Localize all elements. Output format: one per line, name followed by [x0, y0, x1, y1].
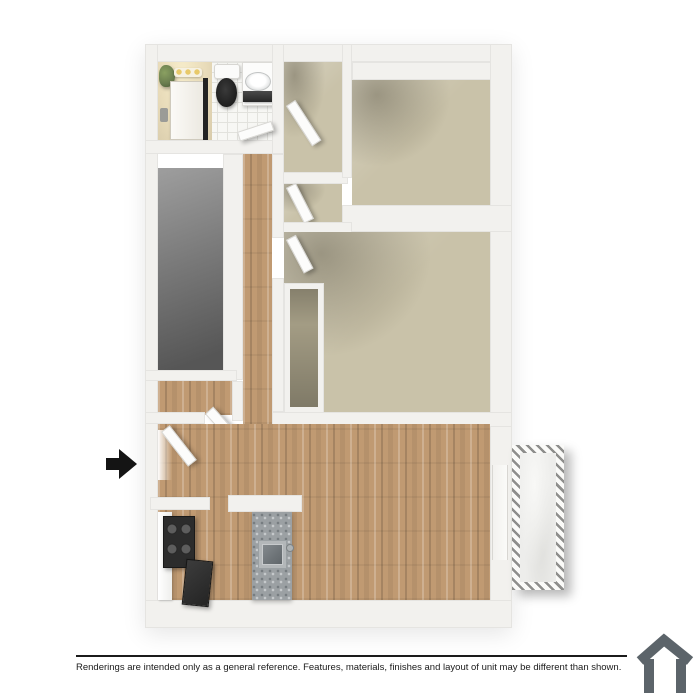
wall	[145, 44, 512, 62]
wall	[223, 154, 243, 380]
wall	[272, 44, 284, 154]
bathroom-sink	[245, 72, 271, 91]
wall	[272, 278, 284, 412]
bedroom-2-closet-floor	[290, 289, 318, 407]
vanity-light	[174, 68, 202, 77]
wall	[150, 497, 210, 510]
den-floor	[158, 168, 223, 370]
faucet-icon	[286, 544, 294, 552]
wall	[232, 381, 243, 421]
hallway-floor	[243, 154, 272, 424]
wall	[342, 44, 352, 178]
arrow-shaft	[106, 458, 119, 470]
entry-arrow-icon	[106, 449, 138, 479]
bedroom-1-floor	[352, 80, 490, 205]
disclaimer-text: Renderings are intended only as a genera…	[76, 662, 636, 674]
wall	[278, 172, 348, 184]
shower-door	[170, 81, 204, 140]
kitchen-sink	[258, 540, 287, 569]
shower-frame	[203, 78, 208, 140]
patio-floor	[520, 453, 556, 582]
towel-bar	[243, 91, 272, 102]
sink-basin	[263, 545, 282, 564]
wall	[145, 44, 158, 628]
sliding-glass-door	[492, 465, 508, 560]
arrow-head	[119, 449, 137, 479]
patio	[512, 445, 564, 590]
floor-plan	[145, 44, 565, 630]
footer-divider	[76, 655, 627, 657]
oven	[182, 559, 214, 608]
wall	[342, 205, 512, 232]
breakfast-bar-wall	[228, 495, 302, 512]
house-logo-icon	[636, 633, 694, 693]
entry-closet-floor	[158, 381, 232, 415]
toilet-tank	[214, 64, 240, 79]
toilet	[216, 78, 237, 107]
wall	[145, 140, 284, 154]
wall	[352, 62, 512, 80]
shower-head-icon	[160, 108, 168, 122]
wall	[145, 370, 237, 381]
wall	[145, 412, 205, 424]
wall	[272, 154, 284, 238]
